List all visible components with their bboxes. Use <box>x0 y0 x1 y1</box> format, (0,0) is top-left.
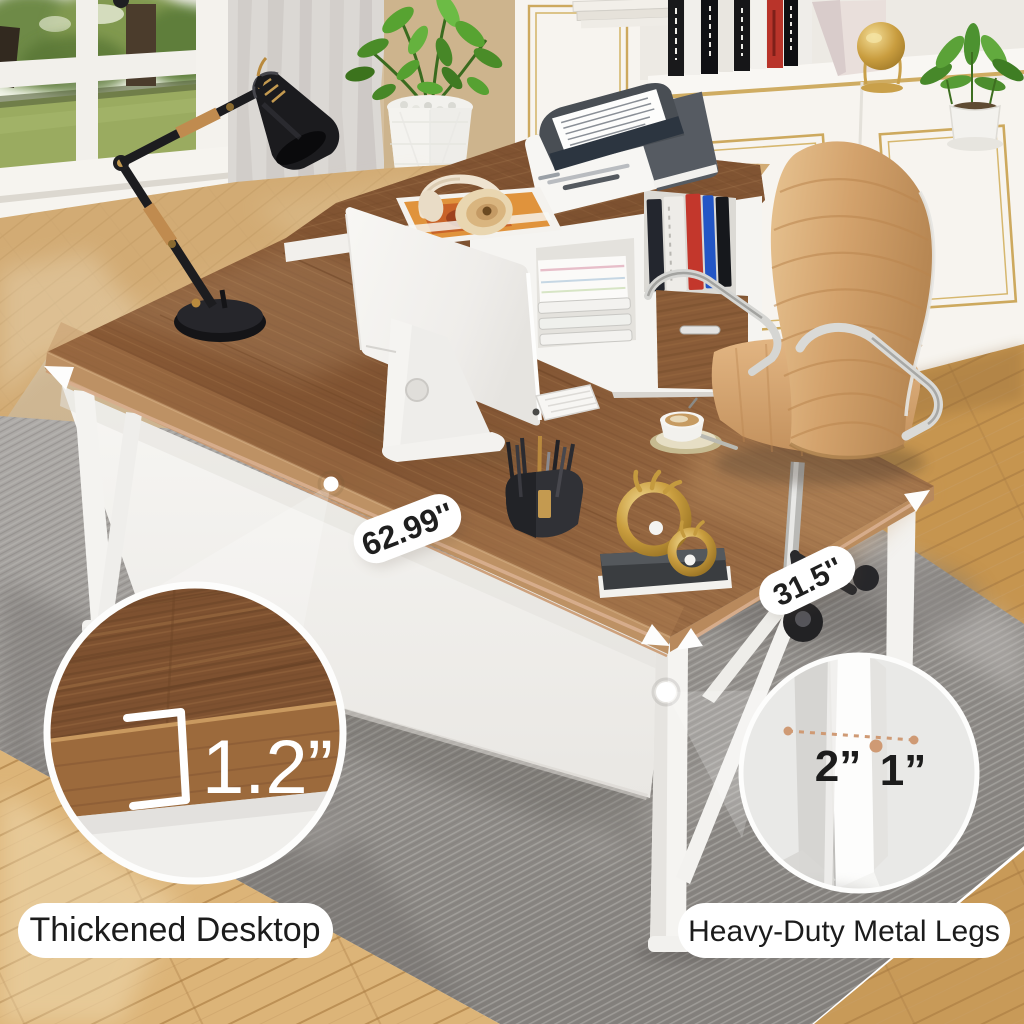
svg-text:1.2”: 1.2” <box>202 725 333 810</box>
svg-text:Heavy-Duty Metal Legs: Heavy-Duty Metal Legs <box>688 915 1000 948</box>
svg-text:2”: 2” <box>815 742 861 791</box>
svg-text:1”: 1” <box>880 746 926 795</box>
svg-text:Thickened Desktop: Thickened Desktop <box>29 911 320 949</box>
